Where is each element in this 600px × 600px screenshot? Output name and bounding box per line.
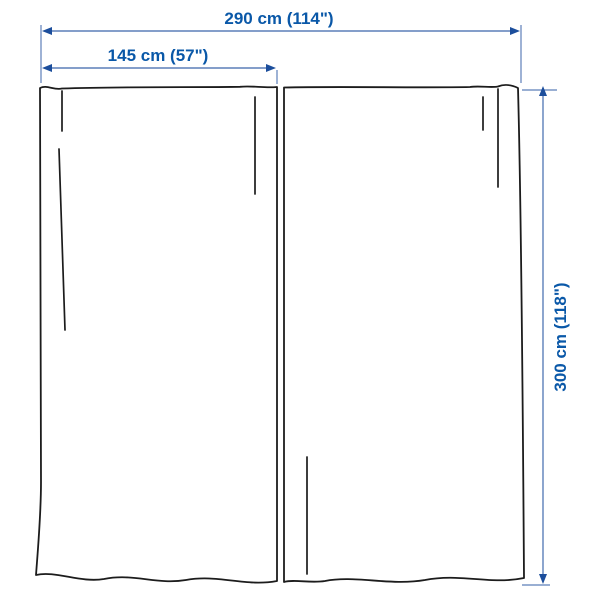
arrowhead-left-icon: [42, 64, 52, 72]
arrowhead-down-icon: [539, 574, 547, 584]
curtain-panel-left-outline: [36, 86, 277, 582]
diagram-canvas: 290 cm (114") 145 cm (57") 300 cm (118"): [0, 0, 600, 600]
panel-width-label: 145 cm (57"): [108, 46, 209, 65]
arrowhead-right-icon: [266, 64, 276, 72]
arrowhead-up-icon: [539, 86, 547, 96]
dimension-panel-width: 145 cm (57"): [42, 46, 277, 84]
curtain-panel-right: [284, 85, 524, 582]
curtain-panel-right-outline: [284, 85, 524, 582]
total-width-label: 290 cm (114"): [224, 9, 333, 28]
dimension-panel-height: 300 cm (118"): [522, 86, 570, 585]
curtain-panel-left: [36, 86, 277, 582]
panel-height-label: 300 cm (118"): [551, 282, 570, 391]
arrowhead-right-icon: [510, 27, 520, 35]
dimension-diagram: 290 cm (114") 145 cm (57") 300 cm (118"): [0, 0, 600, 600]
arrowhead-left-icon: [42, 27, 52, 35]
